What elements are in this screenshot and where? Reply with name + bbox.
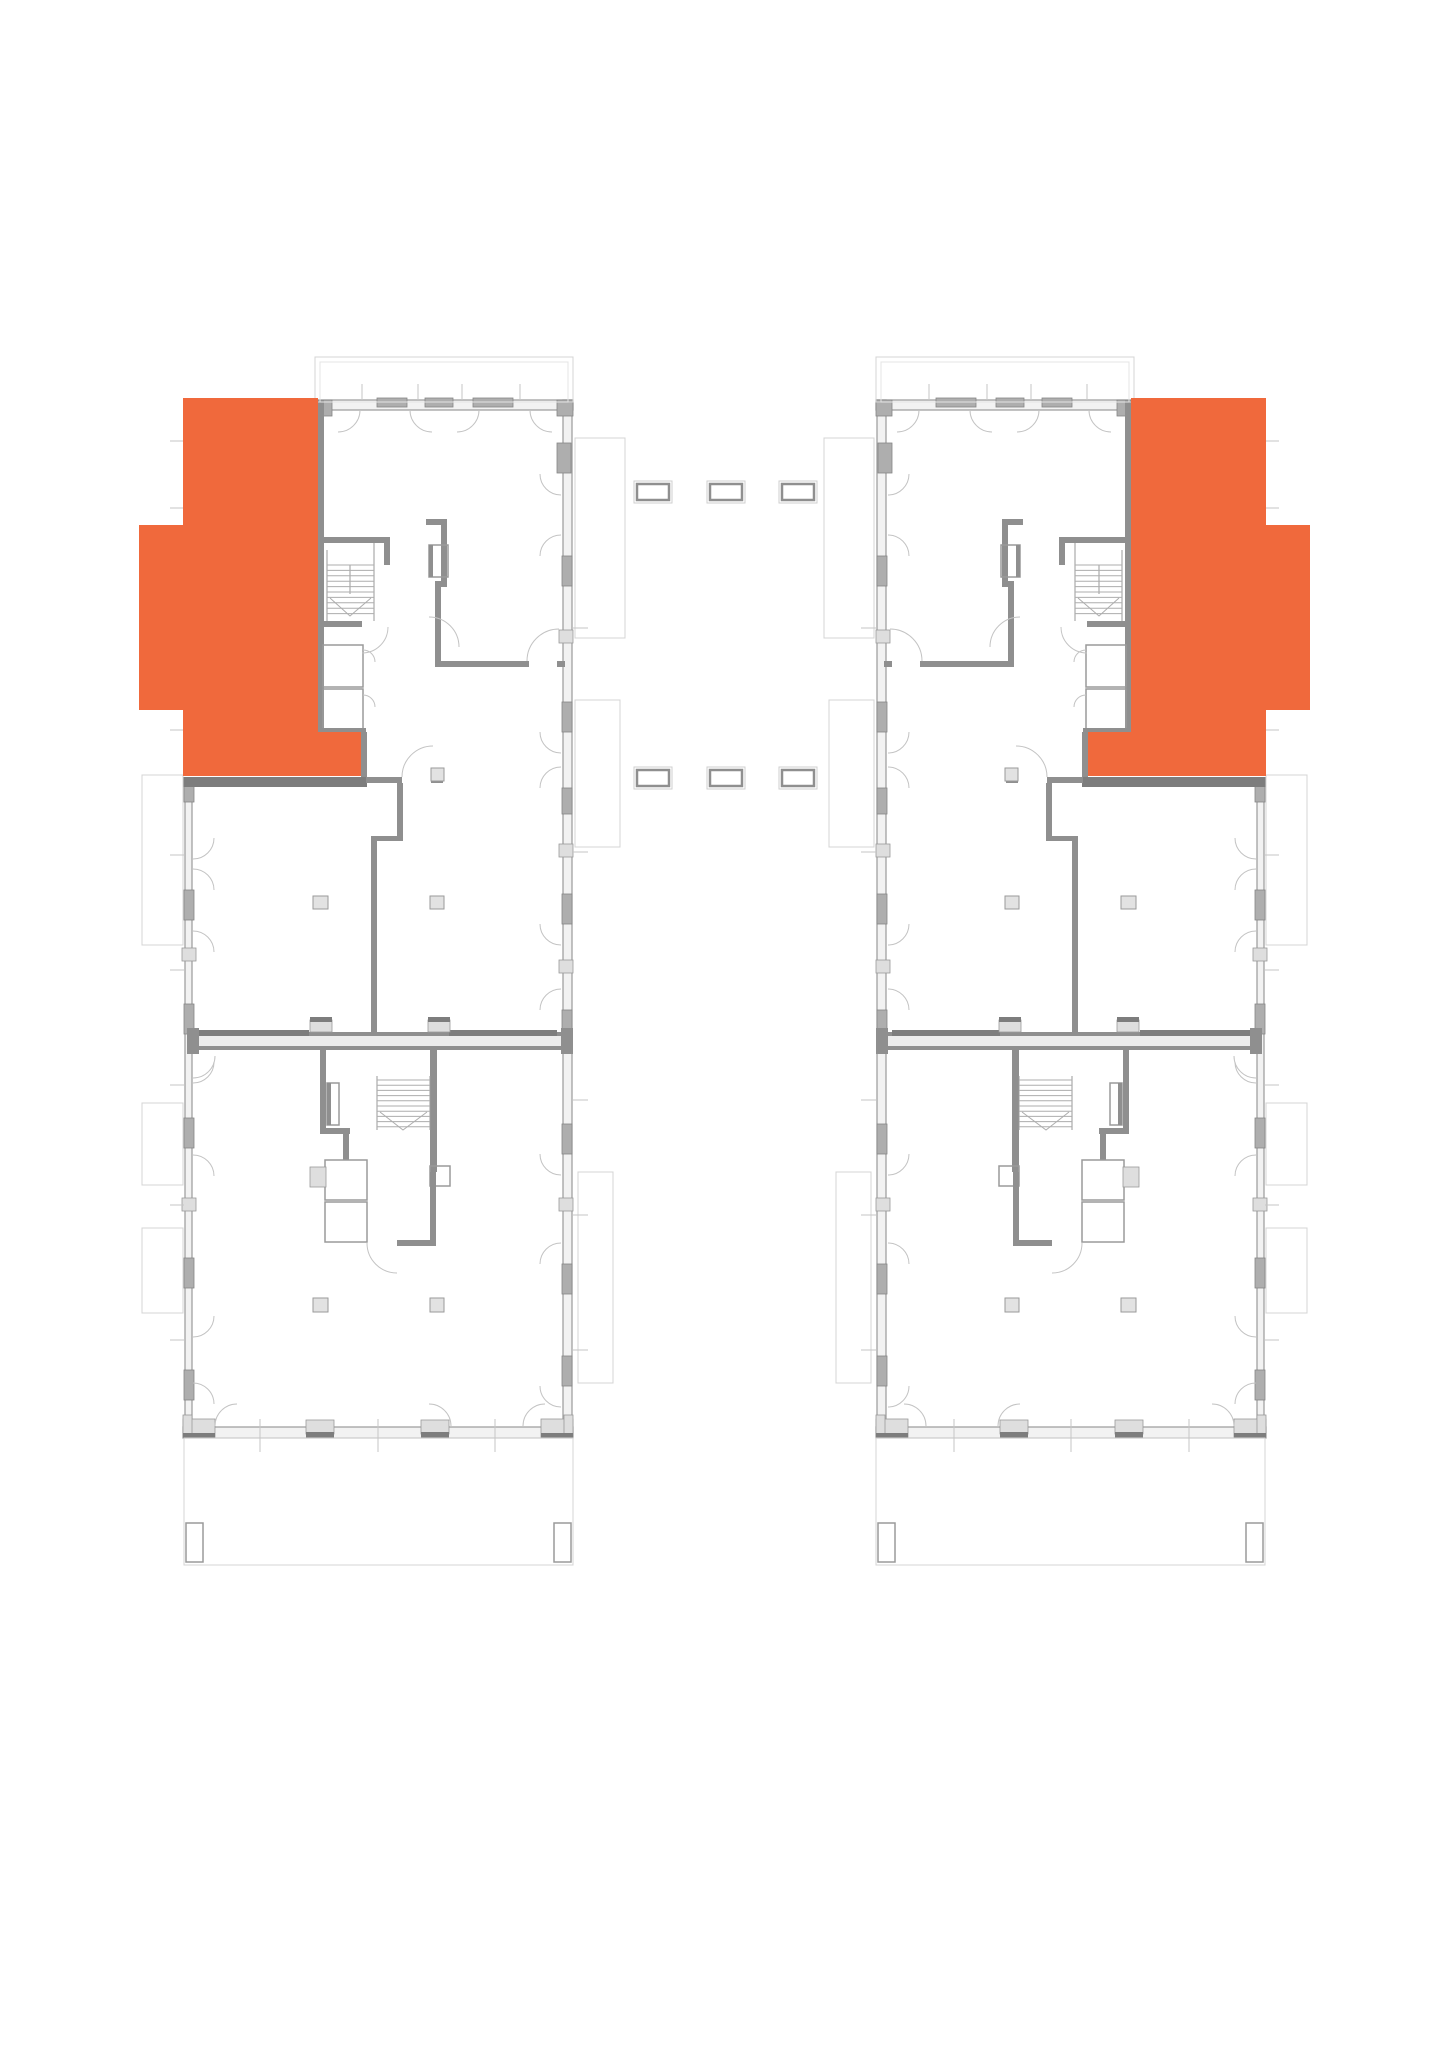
wall-rect [320,362,568,402]
wall-rect [431,768,444,781]
door-swing-arc [1212,1404,1234,1426]
wall-rect [1000,1420,1028,1434]
wall-rect [1121,896,1136,909]
wall-rect [1059,543,1065,565]
wall-rect [430,1050,437,1172]
wall-rect [361,732,367,777]
wall-rect [1115,1432,1143,1438]
door-swing-arc [888,732,909,753]
wall-rect [435,661,529,667]
wall-rect [1082,732,1088,777]
door-swing-arc [990,617,1020,647]
wall-rect [999,1017,1021,1022]
door-swing-arc [363,695,375,707]
wall-rect [836,1172,871,1383]
door-swing-arc [193,1316,214,1337]
building-right [824,357,1310,1565]
wall-rect [429,545,433,577]
wall-rect [562,556,572,586]
door-swing-arc [1089,410,1111,432]
door-swing-arc [888,1154,909,1175]
wall-rect [182,948,196,961]
wall-rect [187,1028,199,1054]
wall-rect [1250,1028,1262,1054]
wall-rect [1100,1134,1106,1160]
wall-rect [559,844,573,857]
wall-rect [1125,543,1131,633]
door-swing-arc [193,1383,214,1404]
wall-rect [183,777,367,787]
wall-rect [1082,777,1266,787]
wall-rect [318,621,362,627]
wall-rect [884,661,892,667]
wall-rect [323,689,363,731]
wall-rect [1086,689,1126,731]
wall-rect [397,783,403,839]
wall-rect [187,1046,573,1050]
wall-rect [876,1433,908,1438]
wall-rect [435,586,441,666]
door-swing-arc [897,410,919,432]
wall-rect [1082,1202,1124,1242]
wall-rect [313,896,328,909]
connector-dash [782,770,814,786]
door-swing-arc [1235,1155,1256,1176]
wall-rect [430,896,444,909]
wall-rect [1047,777,1083,783]
wall-rect [554,1523,571,1562]
wall-rect [184,1118,194,1148]
wall-rect [185,786,192,1427]
wall-rect [876,844,890,857]
wall-rect [384,543,390,565]
wall-rect [1099,1128,1129,1134]
wall-rect [877,1356,887,1386]
door-swing-arc [1235,1383,1256,1404]
wall-rect [876,1438,1265,1565]
wall-rect [186,1523,203,1562]
wall-rect [313,1298,328,1312]
door-swing-arc [363,650,375,662]
wall-rect [184,890,194,920]
door-swing-arc [1235,838,1256,859]
wall-rect [310,1167,326,1187]
door-swing-arc [540,1154,561,1175]
wall-rect [876,1198,890,1211]
wall-rect [876,1028,888,1054]
wall-rect [1087,621,1131,627]
wall-rect [428,1017,450,1022]
wall-rect [306,1420,334,1434]
wall-rect [1046,783,1052,839]
wall-rect [184,1438,573,1565]
wall-rect [1266,1228,1307,1313]
wall-rect [142,775,183,945]
building-left [139,357,625,1565]
wall-rect [877,1124,887,1154]
wall-rect [1086,645,1126,687]
door-swing-arc [193,869,214,890]
door-swing-arc [193,1062,214,1083]
wall-rect [561,1028,573,1054]
door-swing-arc [1074,695,1086,707]
wall-rect [562,788,572,814]
wall-rect [1123,1050,1129,1134]
wall-rect [1059,537,1131,543]
wall-rect [1123,1167,1139,1187]
door-swing-arc [540,535,561,556]
wall-rect [142,1228,183,1313]
wall-rect [559,1198,573,1211]
wall-rect [559,630,573,643]
wall-rect [343,1134,349,1160]
door-swing-arc [1235,869,1256,890]
wall-rect [876,357,1134,402]
wall-rect [1013,1172,1019,1242]
connector-dash [710,484,742,500]
wall-rect [1253,1198,1267,1211]
wall-rect [562,1124,572,1154]
wall-rect [920,661,1014,667]
wall-rect [1266,775,1307,945]
wall-rect [575,438,625,638]
wall-rect [426,519,447,525]
door-swing-arc [1074,650,1086,662]
wall-rect [1125,400,1131,540]
wall-rect [557,443,571,473]
wall-rect [876,630,890,643]
wall-rect [562,1356,572,1386]
wall-rect [824,438,874,638]
wall-rect [1234,1433,1266,1438]
door-swing-arc [890,629,922,661]
wall-rect [876,1046,1262,1050]
door-swing-arc [215,1404,237,1426]
connector-dash [637,770,669,786]
wall-rect [1257,786,1264,1427]
wall-rect [559,960,573,973]
wall-rect [578,1172,613,1383]
wall-rect [320,1128,350,1134]
wall-rect [877,894,887,924]
door-swing-arc [1052,1243,1082,1273]
wall-rect [1140,1030,1250,1036]
door-swing-arc [540,767,561,788]
connector-dash [637,484,669,500]
wall-rect [184,1370,194,1400]
door-swing-arc [1235,1316,1256,1337]
wall-rect [430,1298,444,1312]
door-swing-arc [540,924,561,945]
wall-rect [371,841,377,1034]
door-swing-arc [402,746,433,777]
wall-rect [182,1198,196,1211]
wall-rect [142,1103,183,1185]
door-swing-arc [888,924,909,945]
wall-rect [562,702,572,732]
door-swing-arc [527,629,559,661]
wall-rect [371,836,403,841]
wall-rect [892,1030,1000,1036]
wall-rect [1266,1103,1307,1185]
door-swing-arc [970,410,992,432]
wall-rect [318,537,390,543]
wall-rect [1072,841,1078,1034]
wall-rect [1115,1420,1143,1434]
door-swing-arc [410,410,432,432]
wall-rect [397,1240,436,1246]
wall-rect [541,1433,573,1438]
wall-rect [877,702,887,732]
wall-rect [1012,1050,1019,1172]
wall-rect [881,362,1129,402]
door-swing-arc [367,1243,397,1273]
wall-rect [1046,836,1078,841]
wall-rect [323,645,363,687]
wall-rect [1246,1523,1263,1562]
wall-rect [557,661,565,667]
wall-rect [310,1017,332,1022]
wall-rect [1253,948,1267,961]
door-swing-arc [888,535,909,556]
wall-rect [1118,1083,1122,1125]
wall-rect [575,700,620,847]
wall-rect [877,788,887,814]
door-swing-arc [540,732,561,753]
wall-rect [1005,896,1019,909]
wall-rect [318,543,324,633]
wall-rect [1013,1240,1052,1246]
wall-rect [877,1264,887,1294]
wall-rect [562,1264,572,1294]
wall-rect [1255,1118,1265,1148]
door-swing-arc [540,1243,561,1264]
wall-rect [430,1172,436,1242]
wall-rect [876,960,890,973]
door-swing-arc [540,989,561,1010]
wall-rect [1255,1370,1265,1400]
wall-rect [184,786,194,802]
wall-rect [306,1432,334,1438]
wall-rect [1002,519,1023,525]
door-swing-arc [1061,627,1087,653]
door-swing-arc [540,474,561,495]
door-swing-arc [1235,1062,1256,1083]
wall-rect [878,1523,895,1562]
floor-plan-svg [0,0,1449,2048]
door-swing-arc [888,474,909,495]
door-swing-arc [888,989,909,1010]
wall-rect [184,1258,194,1288]
wall-rect [829,700,874,847]
wall-rect [1016,545,1020,577]
wall-rect [1121,1298,1136,1312]
door-swing-arc [888,767,909,788]
wall-rect [1082,1160,1124,1200]
wall-rect [320,1050,326,1134]
door-swing-arc [193,1056,215,1078]
wall-rect [1005,768,1018,781]
wall-rect [315,357,573,402]
door-swing-arc [457,410,479,432]
wall-rect [1255,1258,1265,1288]
wall-rect [325,1202,367,1242]
door-swing-arc [338,410,360,432]
door-swing-arc [429,617,459,647]
wall-rect [1255,786,1265,802]
connector-dash [710,770,742,786]
wall-rect [199,1030,309,1036]
wall-rect [562,894,572,924]
wall-rect [421,1432,449,1438]
wall-rect [1000,1432,1028,1438]
door-swing-arc [530,410,552,432]
connector-dash [782,484,814,500]
door-swing-arc [1017,410,1039,432]
door-swing-arc [362,627,388,653]
wall-rect [1005,1298,1019,1312]
wall-rect [1255,890,1265,920]
connector-dashes [634,481,817,789]
wall-rect [183,1433,215,1438]
floor-plan-canvas [0,0,1449,2048]
wall-rect [421,1420,449,1434]
door-swing-arc [193,1155,214,1176]
door-swing-arc [1016,746,1047,777]
wall-rect [1117,1017,1139,1022]
wall-rect [878,443,892,473]
wall-rect [318,400,324,540]
wall-rect [877,556,887,586]
wall-rect [366,777,402,783]
door-swing-arc [193,838,214,859]
wall-rect [325,1160,367,1200]
wall-rect [327,1083,331,1125]
door-swing-arc [888,1243,909,1264]
wall-rect [449,1030,557,1036]
wall-rect [1008,586,1014,666]
door-swing-arc [1234,1056,1256,1078]
